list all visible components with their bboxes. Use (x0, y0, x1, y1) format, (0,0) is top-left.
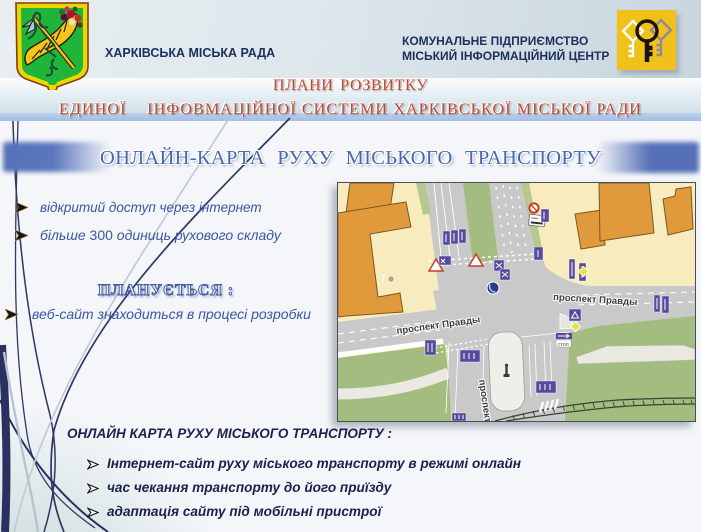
svg-text:7: 7 (381, 274, 386, 283)
svg-text:стоп: стоп (558, 342, 569, 348)
